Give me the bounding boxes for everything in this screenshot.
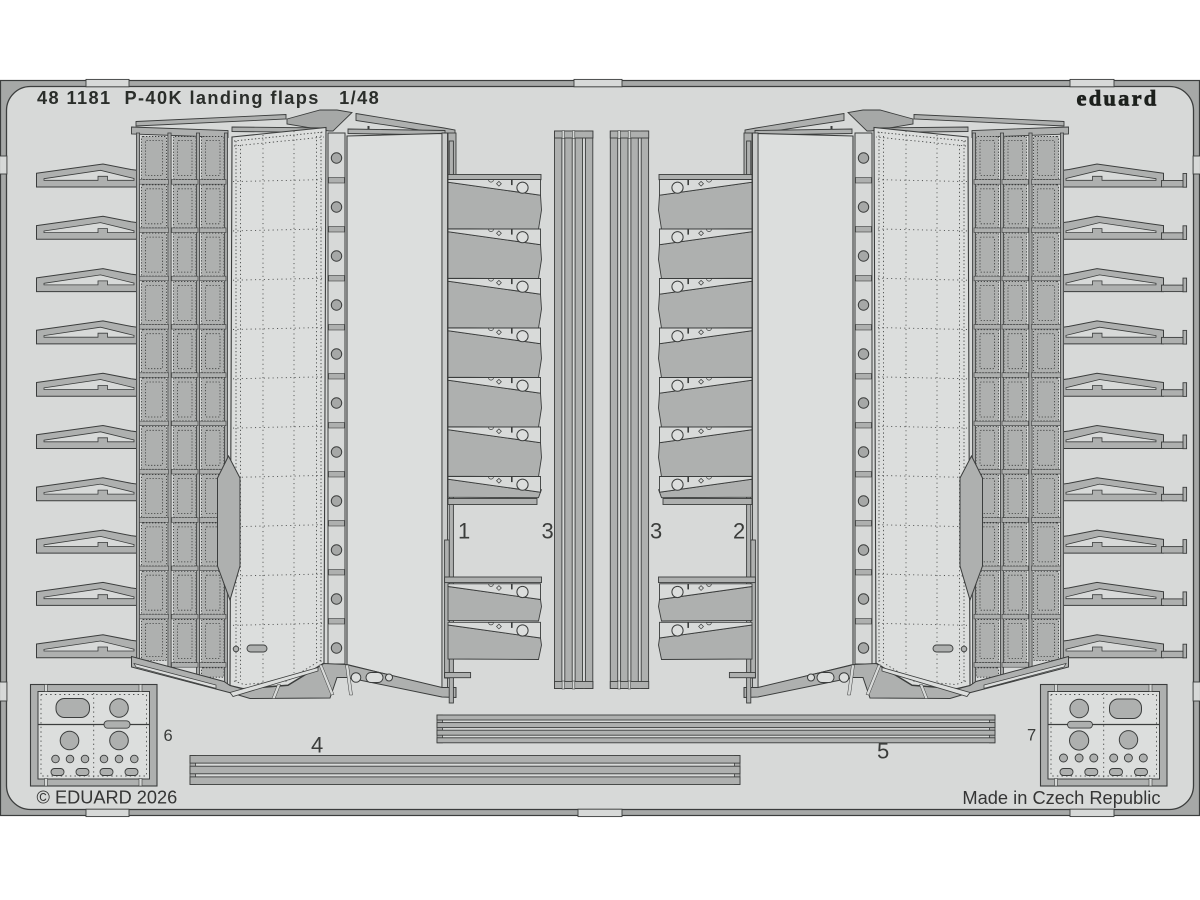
svg-text:Made in Czech Republic: Made in Czech Republic xyxy=(962,787,1160,808)
svg-text:48 1181 P-40K landing flaps: 48 1181 P-40K landing flaps 1/48 xyxy=(37,88,380,108)
svg-text:4: 4 xyxy=(311,733,323,758)
svg-text:6: 6 xyxy=(164,727,173,745)
svg-text:1: 1 xyxy=(458,519,470,544)
svg-text:5: 5 xyxy=(877,739,889,764)
svg-text:eduard: eduard xyxy=(1077,86,1159,111)
svg-text:7: 7 xyxy=(1027,727,1036,745)
svg-text:3: 3 xyxy=(542,519,554,544)
svg-text:2: 2 xyxy=(733,519,745,544)
svg-text:© EDUARD 2026: © EDUARD 2026 xyxy=(37,788,178,808)
svg-text:3: 3 xyxy=(650,519,662,544)
